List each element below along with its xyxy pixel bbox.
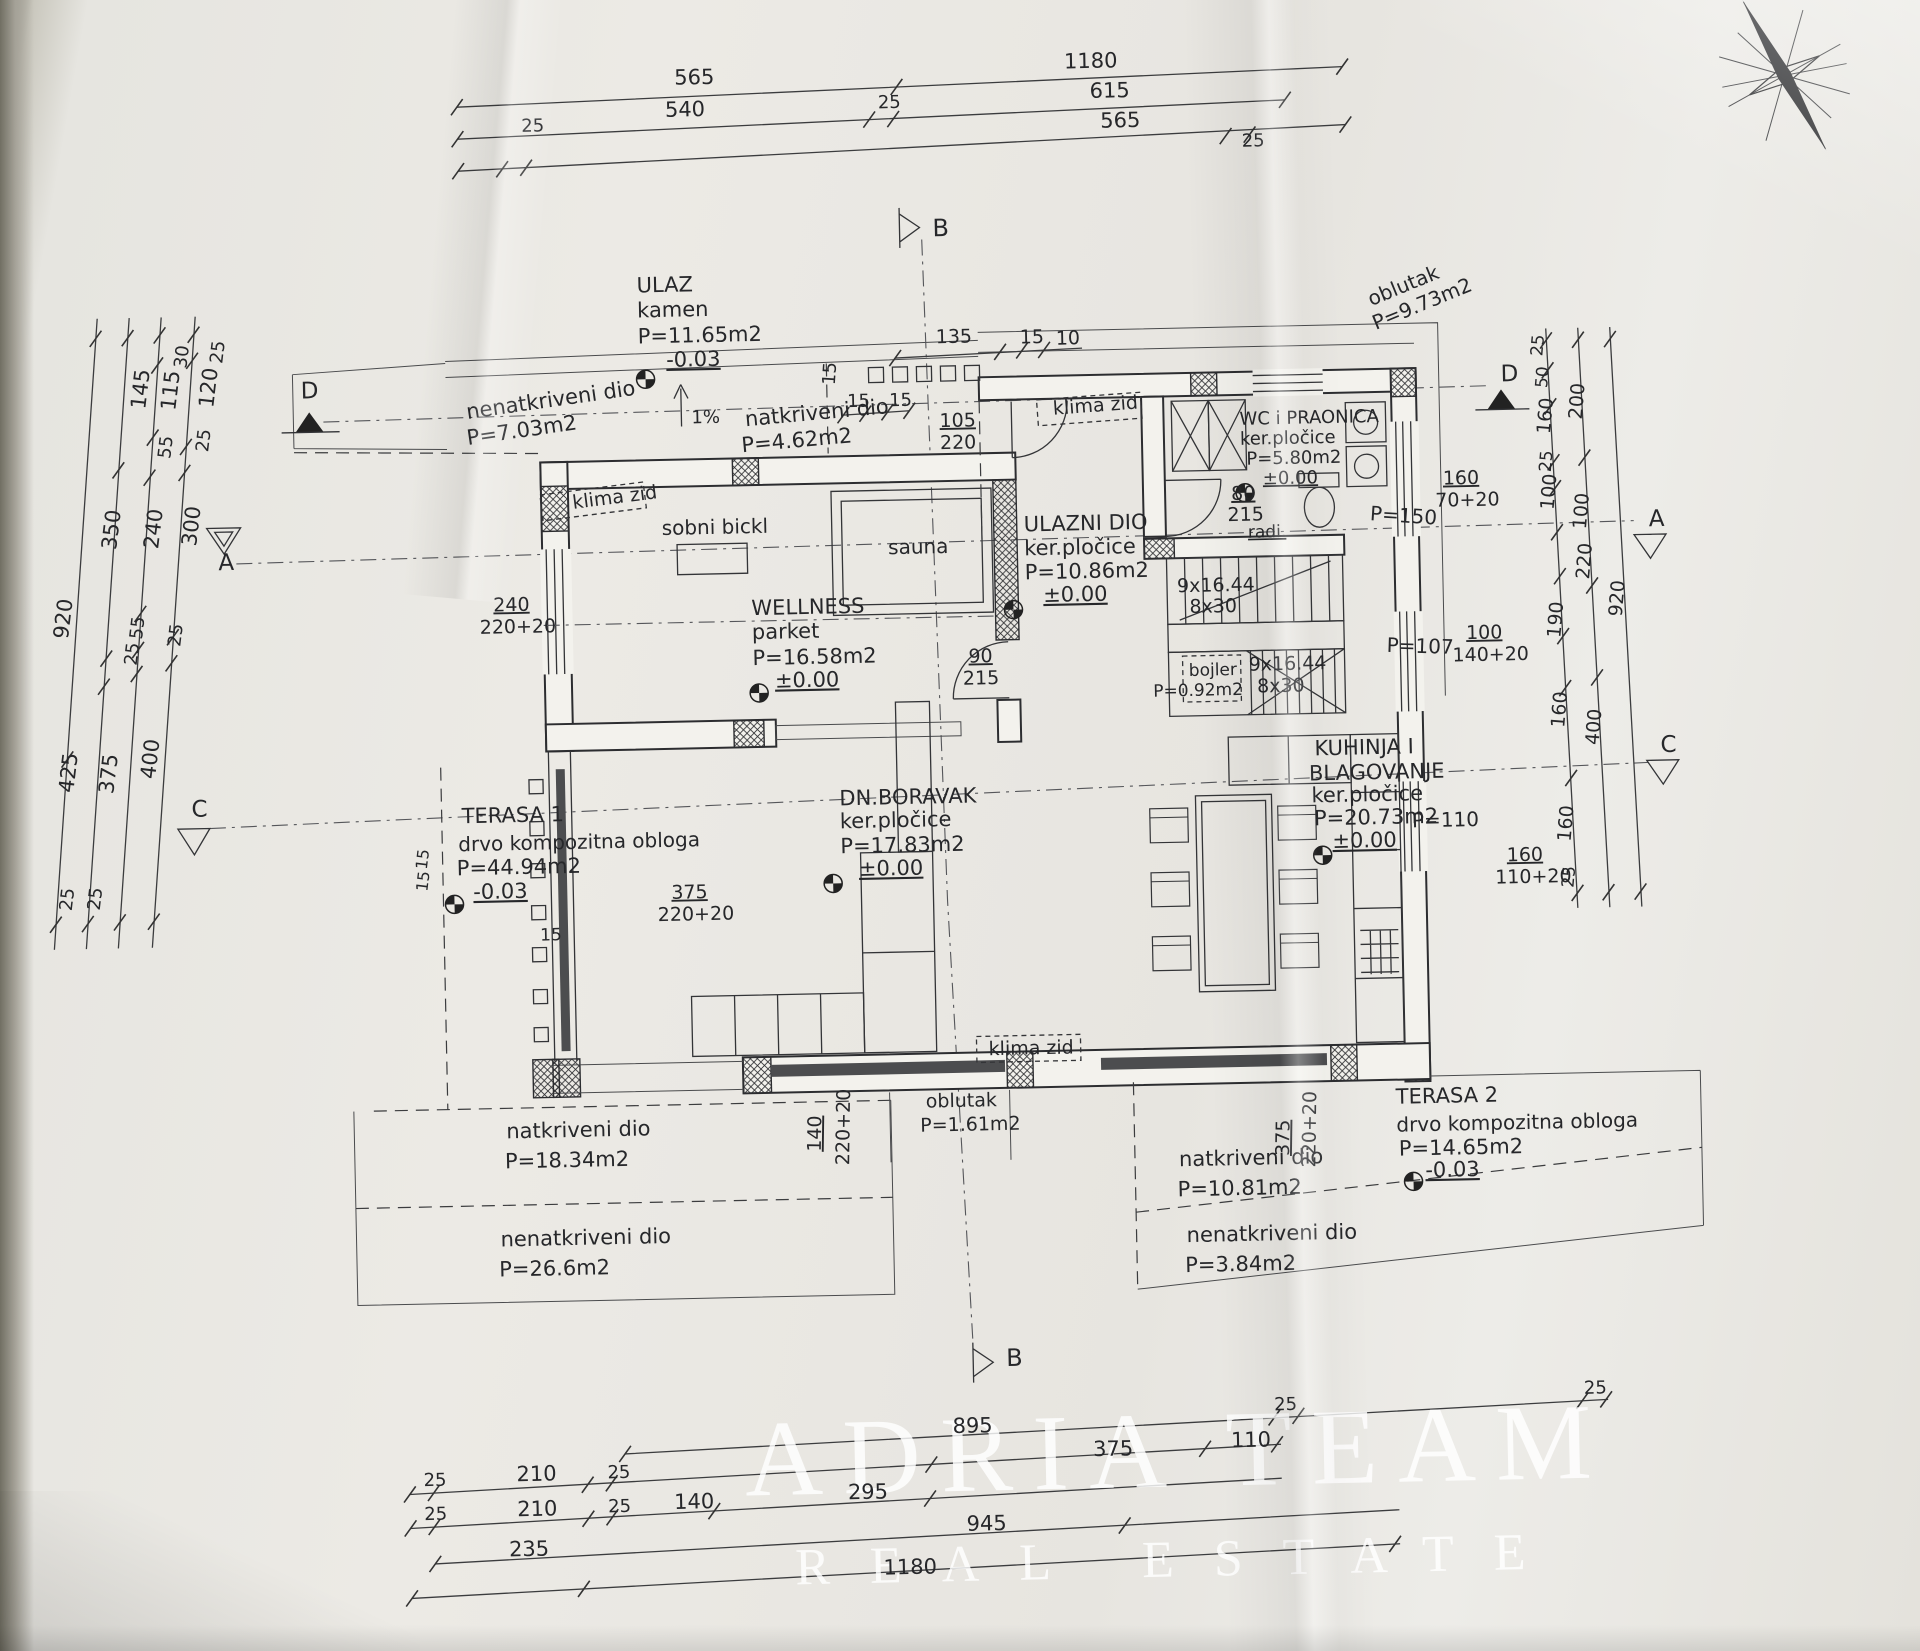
plan-label: 70+20 bbox=[1435, 488, 1500, 511]
plan-label: KUHINJA I bbox=[1314, 734, 1414, 760]
plan-label: 240 bbox=[493, 594, 530, 617]
plan-label: 55 bbox=[126, 615, 150, 640]
plan-label: -0.03 bbox=[1425, 1157, 1480, 1182]
plan-label: 565 bbox=[674, 65, 715, 90]
plan-label: 945 bbox=[966, 1511, 1007, 1536]
plan-label: 25 bbox=[521, 115, 544, 136]
plan-label: 1180 bbox=[883, 1554, 937, 1579]
plan-label: 15 bbox=[847, 391, 870, 412]
plan-label: 105 bbox=[939, 409, 976, 432]
plan-label: D bbox=[1500, 361, 1518, 387]
plan-label: P=16.58m2 bbox=[752, 644, 877, 671]
plan-label: 30 bbox=[170, 344, 194, 369]
plan-label: 120 bbox=[194, 366, 223, 409]
plan-label: 100 bbox=[1569, 492, 1594, 530]
plan-label: 135 bbox=[936, 325, 973, 348]
plan-label: 25 bbox=[607, 1462, 630, 1483]
plan-label: 15 bbox=[889, 390, 912, 411]
plan-label: 25 bbox=[1274, 1394, 1297, 1415]
plan-label: parket bbox=[752, 619, 820, 644]
plan-label: ker.pločice bbox=[1024, 534, 1136, 560]
plan-label: P=5.80m2 bbox=[1246, 447, 1341, 470]
plan-label: P=107 bbox=[1386, 633, 1454, 659]
plan-label: 25 bbox=[164, 622, 188, 647]
plan-label: natkriveni dio bbox=[506, 1116, 651, 1143]
plan-label: natkriveni dio bbox=[1179, 1144, 1324, 1171]
slope-arrow bbox=[674, 384, 689, 426]
plan-label: 215 bbox=[963, 667, 1000, 690]
section-triangle-C-left bbox=[178, 829, 211, 856]
plan-label: 25 bbox=[1536, 450, 1558, 473]
plan-label: 375 bbox=[671, 881, 708, 904]
plan-label: 375 bbox=[94, 752, 123, 795]
plan-label: ±0.00 bbox=[1332, 828, 1397, 853]
plan-label: P=1.61m2 bbox=[920, 1113, 1021, 1137]
plan-label: P=44.94m2 bbox=[457, 854, 582, 881]
plan-label: 220+20 bbox=[480, 615, 557, 639]
photographed-floor-plan: ADRIA TEAM REAL ESTATE 56511805402561525… bbox=[0, 0, 1920, 1651]
plan-label: A bbox=[218, 550, 235, 576]
plan-label: 160 bbox=[1547, 691, 1572, 729]
plan-label: 50 bbox=[1532, 366, 1554, 389]
plan-label: ±0.00 bbox=[859, 856, 924, 881]
plan-label: 210 bbox=[517, 1496, 558, 1521]
plan-label: 615 bbox=[1089, 78, 1130, 103]
plan-label: nenatkriveni dio bbox=[500, 1224, 671, 1252]
plan-label: P=26.6m2 bbox=[499, 1255, 610, 1281]
plan-label: 100 bbox=[1466, 621, 1503, 644]
plan-label: 295 bbox=[848, 1479, 889, 1504]
plan-label: 210 bbox=[516, 1461, 557, 1486]
plan-label: B bbox=[1006, 1344, 1023, 1372]
plan-label: C bbox=[1660, 732, 1677, 758]
plan-label: 565 bbox=[1100, 108, 1141, 133]
plan-label: 920 bbox=[1605, 579, 1630, 617]
plan-label: 15 bbox=[412, 848, 433, 870]
plan-label: 160 bbox=[1443, 467, 1480, 490]
plan-label: bojler bbox=[1189, 660, 1238, 681]
plan-label: 145 bbox=[126, 368, 155, 411]
plan-label: 25 bbox=[1584, 1377, 1607, 1398]
plan-label: 350 bbox=[97, 508, 126, 551]
plan-label: 9x16.44 bbox=[1248, 652, 1326, 676]
plan-label: 1180 bbox=[1064, 48, 1118, 73]
plan-label: 15 bbox=[412, 870, 433, 892]
plan-label: 25 bbox=[1558, 865, 1580, 888]
plan-label: A bbox=[1648, 506, 1665, 532]
plan-label: klima zid bbox=[988, 1036, 1074, 1060]
plan-label: TERASA 1 bbox=[460, 802, 564, 828]
plan-label: 25 bbox=[206, 340, 230, 365]
section-triangle-D-right bbox=[1475, 389, 1529, 410]
plan-label: 25 bbox=[878, 92, 901, 113]
plan-label: 540 bbox=[665, 97, 706, 122]
plan-label: -0.03 bbox=[473, 879, 528, 904]
section-triangle-A-right bbox=[1634, 534, 1666, 559]
plan-label: ±0.00 bbox=[1043, 582, 1108, 607]
plan-label: 25 bbox=[608, 1496, 631, 1517]
plan-label: 25 bbox=[424, 1504, 447, 1525]
plan-label: 140 bbox=[804, 1115, 827, 1152]
plan-label: 920 bbox=[49, 597, 78, 640]
plan-label: ker.pločice bbox=[840, 807, 952, 833]
window-east-2 bbox=[1394, 611, 1425, 712]
plan-label: sauna bbox=[888, 534, 949, 559]
plan-label: 240 bbox=[139, 507, 168, 550]
plan-label: C bbox=[191, 797, 208, 823]
plan-label: 140+20 bbox=[1452, 643, 1529, 667]
section-flag-B-bottom bbox=[973, 1342, 994, 1382]
plan-label: 220+20 bbox=[832, 1089, 855, 1166]
plan-label: P=110 bbox=[1412, 807, 1479, 832]
plan-label: DN.BORAVAK bbox=[839, 783, 978, 810]
plan-label: P=18.34m2 bbox=[505, 1147, 630, 1174]
plan-label: 25 bbox=[1527, 334, 1549, 357]
plan-label: 25 bbox=[423, 1470, 446, 1491]
plan-label: TERASA 2 bbox=[1395, 1083, 1499, 1109]
plan-label: 190 bbox=[1543, 601, 1568, 639]
plan-label: P=11.65m2 bbox=[637, 322, 762, 349]
plan-label: P=10.81m2 bbox=[1177, 1175, 1302, 1202]
floor-plan-drawing: ADRIA TEAM REAL ESTATE 56511805402561525… bbox=[0, 0, 1920, 1651]
plan-label: 90 bbox=[968, 645, 993, 668]
dining-table bbox=[1149, 793, 1319, 992]
plan-label: 100 bbox=[1537, 473, 1562, 511]
plan-label: D bbox=[300, 378, 318, 404]
plan-label: 235 bbox=[509, 1537, 550, 1562]
plan-label: 375 bbox=[1093, 1436, 1134, 1461]
plan-label: 10 bbox=[1056, 327, 1081, 350]
plan-label: P=17.83m2 bbox=[840, 832, 965, 859]
plan-label: 160 bbox=[1507, 844, 1544, 867]
plan-label: ±0.00 bbox=[1263, 467, 1319, 489]
plan-label: 220+20 bbox=[658, 903, 735, 927]
window-north-wc bbox=[1253, 368, 1324, 396]
plan-label: drvo kompozitna obloga bbox=[458, 827, 700, 856]
plan-label: 300 bbox=[177, 505, 206, 548]
plan-label: 55 bbox=[154, 435, 178, 460]
plan-label: drvo kompozitna obloga bbox=[1396, 1108, 1638, 1137]
plan-label: 80 bbox=[1231, 483, 1256, 506]
compass-rose bbox=[1687, 0, 1883, 182]
plan-label: P=10.86m2 bbox=[1024, 558, 1149, 585]
plan-label: 115 bbox=[156, 369, 185, 412]
plan-label: 895 bbox=[952, 1413, 993, 1438]
plan-label: 8x30 bbox=[1189, 595, 1237, 618]
plan-label: 15 bbox=[540, 925, 562, 945]
plan-label: 220 bbox=[940, 431, 977, 454]
plan-label: 160 bbox=[1554, 804, 1579, 842]
section-flag-B-top bbox=[899, 208, 920, 248]
plan-label: 25 bbox=[121, 641, 145, 666]
wardrobe bbox=[1171, 400, 1246, 472]
plan-label: 110 bbox=[1231, 1427, 1272, 1452]
plan-text-labels: 5651180540256152556525BBULAZkamenP=11.65… bbox=[37, 37, 1693, 1597]
plan-label: WELLNESS bbox=[751, 594, 865, 620]
plan-label: 1% bbox=[691, 407, 720, 429]
section-triangle-C-right bbox=[1647, 760, 1679, 785]
plan-label: nenatkriveni dio bbox=[1186, 1220, 1357, 1248]
plan-label: 200 bbox=[1565, 382, 1590, 420]
plan-label: P=150 bbox=[1369, 501, 1437, 529]
plan-label: sobni bickl bbox=[661, 514, 768, 540]
plan-label: ULAZ bbox=[636, 272, 693, 297]
plan-label: 15 bbox=[1020, 326, 1045, 349]
plan-label: kamen bbox=[637, 297, 709, 322]
plan-label: 8x30 bbox=[1257, 675, 1305, 698]
plan-label: 25 bbox=[192, 428, 216, 453]
plan-label: 9x16.44 bbox=[1177, 574, 1255, 598]
plan-label: WC i PRAONICA bbox=[1239, 406, 1379, 430]
plan-label: ULAZNI DIO bbox=[1023, 510, 1147, 537]
plan-label: 25 bbox=[1242, 130, 1265, 151]
plan-label: P=3.84m2 bbox=[1185, 1251, 1296, 1277]
plan-label: P=0.92m2 bbox=[1153, 680, 1243, 702]
plan-label: 140 bbox=[674, 1489, 715, 1514]
plan-label: 220 bbox=[1572, 542, 1597, 580]
plan-label: 400 bbox=[136, 738, 165, 781]
plan-label: -0.03 bbox=[666, 347, 721, 372]
plan-label: 400 bbox=[1582, 708, 1607, 746]
plan-label: 160 bbox=[1533, 397, 1558, 435]
plan-label: radi. bbox=[1248, 522, 1287, 543]
plan-label: 425 bbox=[54, 751, 83, 794]
plan-label: oblutak bbox=[926, 1089, 998, 1112]
plan-label: 25 bbox=[84, 886, 108, 911]
window-west bbox=[540, 549, 574, 675]
plan-label: 25 bbox=[56, 887, 80, 912]
plan-label: B bbox=[932, 214, 949, 242]
entry-pavers bbox=[868, 365, 979, 382]
plan-label: ±0.00 bbox=[775, 667, 840, 692]
plan-label: 15 bbox=[819, 361, 841, 385]
